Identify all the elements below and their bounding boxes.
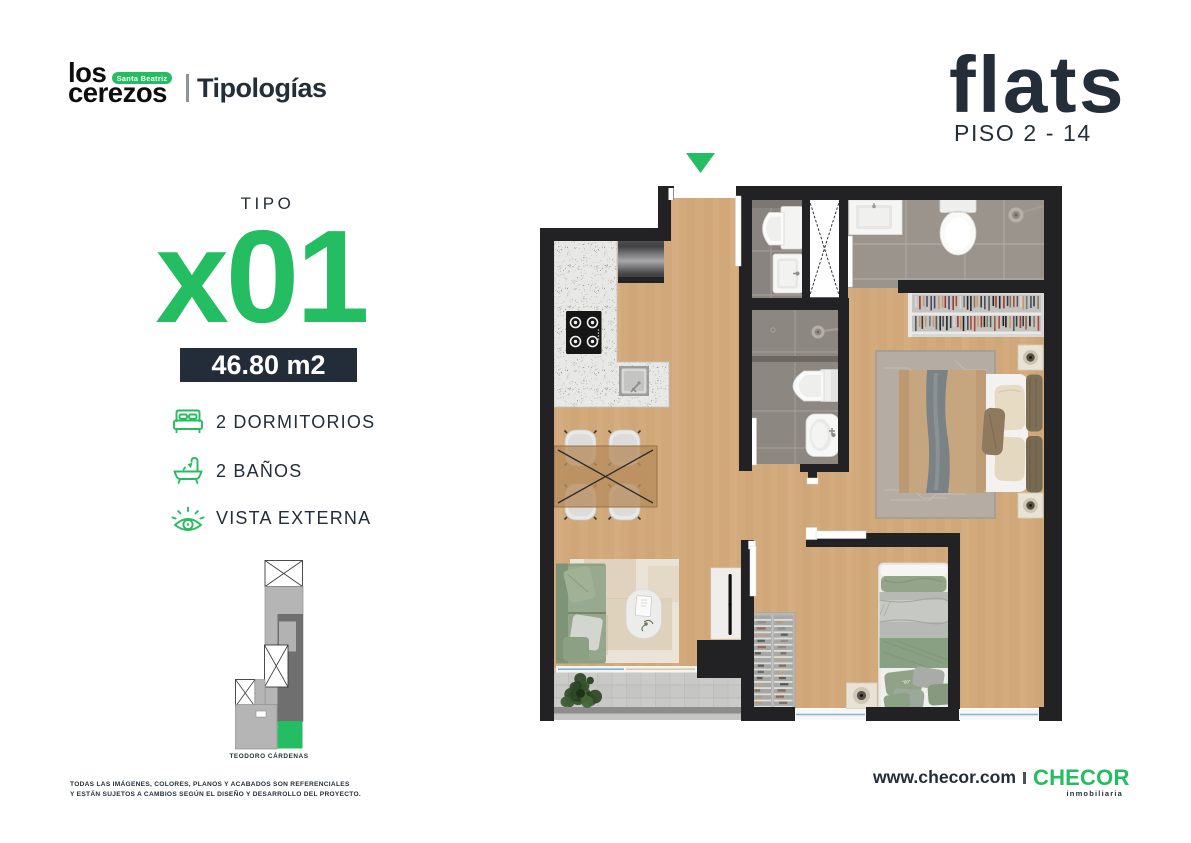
svg-text:°00°: °00° [902, 679, 911, 685]
